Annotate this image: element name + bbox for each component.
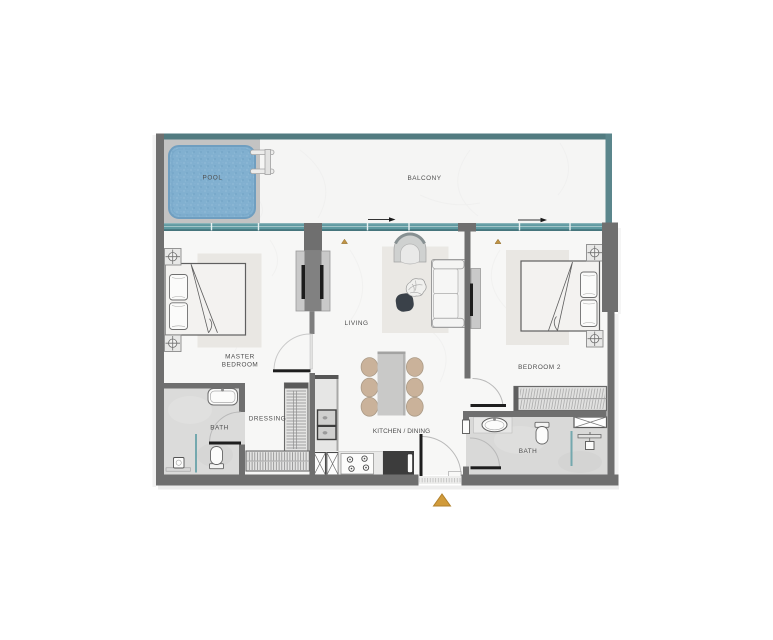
svg-text:LIVING: LIVING (345, 320, 369, 327)
svg-text:BEDROOM: BEDROOM (222, 362, 259, 369)
svg-text:POOL: POOL (203, 175, 223, 182)
svg-text:BALCONY: BALCONY (407, 175, 441, 182)
svg-text:BATH: BATH (519, 448, 538, 455)
svg-text:BEDROOM 2: BEDROOM 2 (518, 364, 561, 371)
svg-text:BATH: BATH (210, 425, 229, 432)
svg-text:KITCHEN / DINING: KITCHEN / DINING (373, 428, 430, 435)
svg-text:MASTER: MASTER (225, 354, 255, 361)
svg-text:DRESSING: DRESSING (249, 416, 286, 423)
